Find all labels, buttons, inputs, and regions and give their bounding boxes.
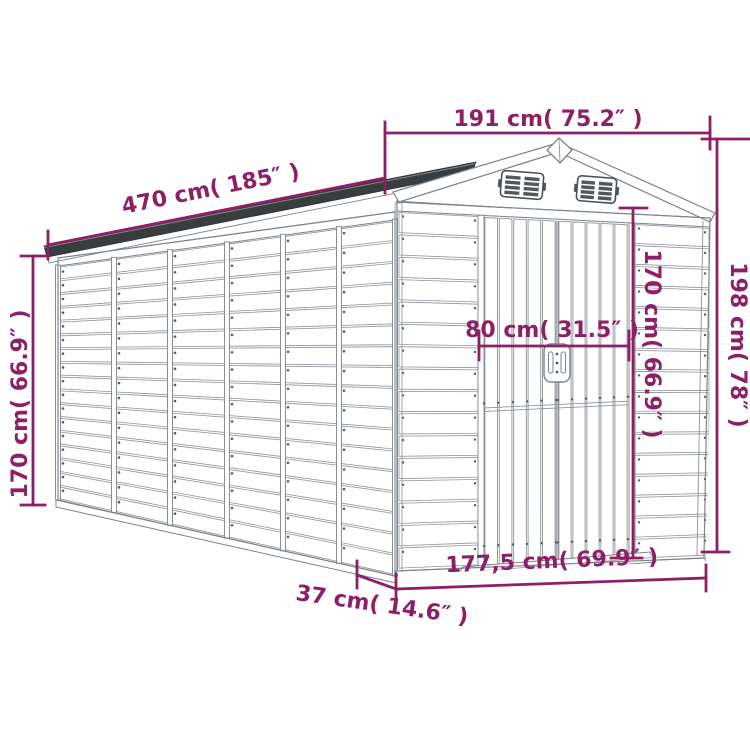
diagram-page: 191 cm( 75.2″ ) 470 cm( 185″ ) 198 cm( 7… <box>0 0 750 750</box>
screw-dot <box>474 241 476 243</box>
side-slat <box>227 383 283 401</box>
screw-dot <box>62 435 65 438</box>
screw-dot <box>474 526 476 528</box>
screw-dot <box>497 544 499 546</box>
screw-dot <box>118 412 121 415</box>
screw-dot <box>343 291 346 294</box>
screw-dot <box>118 292 121 295</box>
dimension-total-height-right-label: 198 cm( 78″ ) <box>725 262 750 427</box>
door-panel <box>587 223 599 561</box>
screw-dot <box>704 334 706 336</box>
screw-dot <box>627 538 629 540</box>
gable-vent <box>497 170 547 200</box>
screw-dot <box>474 351 476 353</box>
screw-dot <box>118 337 121 340</box>
side-slat <box>283 347 339 365</box>
side-slat <box>58 391 114 407</box>
screw-dot <box>287 332 290 335</box>
screw-dot <box>231 386 234 389</box>
screw-dot <box>585 540 587 542</box>
screw-dot <box>174 448 177 451</box>
screw-dot <box>231 524 234 527</box>
screw-dot <box>343 527 346 530</box>
dimension-door-width-label: 80 cm( 31.5″ ) <box>465 318 639 343</box>
side-post <box>112 257 117 512</box>
front-slat <box>399 257 479 280</box>
front-slat <box>399 280 479 302</box>
screw-dot <box>62 284 65 287</box>
screw-dot <box>599 539 601 541</box>
screw-dot <box>62 489 65 492</box>
side-post <box>281 234 286 550</box>
screw-dot <box>231 420 234 423</box>
side-slat <box>227 292 283 311</box>
screw-dot <box>118 397 121 400</box>
screw-dot <box>474 219 476 221</box>
side-slat <box>114 349 170 363</box>
door-panel <box>615 224 627 559</box>
screw-dot <box>474 307 476 309</box>
side-slat <box>283 366 339 384</box>
screw-dot <box>497 402 499 404</box>
screw-dot <box>118 277 121 280</box>
screw-dot <box>343 409 346 412</box>
door-handle-grip <box>549 352 554 373</box>
gable-vent <box>573 175 620 203</box>
front-slat <box>399 235 479 258</box>
screw-dot <box>343 350 346 353</box>
screw-dot <box>287 535 290 538</box>
screw-dot <box>638 227 640 229</box>
side-slat <box>283 268 339 290</box>
screw-dot <box>474 504 476 506</box>
front-slat <box>399 479 479 501</box>
screw-dot <box>540 542 542 544</box>
screw-dot <box>62 462 65 465</box>
side-slat <box>227 274 283 295</box>
door-handle-grip <box>561 352 566 373</box>
dimension-wall-height-left-label: 170 cm( 66.9″ ) <box>8 309 33 498</box>
side-slat <box>170 296 227 314</box>
screw-dot <box>483 402 485 404</box>
screw-dot <box>174 384 177 387</box>
screw-dot <box>118 352 121 355</box>
screw-dot <box>231 403 234 406</box>
door-panel <box>499 218 512 564</box>
screw-dot <box>287 369 290 372</box>
screw-dot <box>62 421 65 424</box>
screw-dot <box>483 545 485 547</box>
screw-dot <box>704 313 706 315</box>
screw-dot <box>174 303 177 306</box>
screw-dot <box>174 480 177 483</box>
screw-dot <box>343 508 346 511</box>
screw-dot <box>512 401 514 403</box>
front-slat <box>399 347 479 368</box>
screw-dot <box>231 489 234 492</box>
screw-dot <box>343 389 346 392</box>
side-slat <box>58 304 114 320</box>
screw-dot <box>231 316 234 319</box>
screw-dot <box>287 517 290 520</box>
screw-dot <box>231 299 234 302</box>
front-slat <box>635 225 709 247</box>
side-slat <box>114 333 170 348</box>
side-slat <box>339 263 395 286</box>
side-slat <box>58 349 114 362</box>
side-wall <box>56 212 398 583</box>
front-slat <box>399 391 479 411</box>
screw-dot <box>343 232 346 235</box>
screw-dot <box>571 398 573 400</box>
screw-dot <box>474 460 476 462</box>
side-slat <box>283 308 339 327</box>
side-slat <box>114 379 170 395</box>
screw-dot <box>638 500 640 502</box>
screw-dot <box>231 264 234 267</box>
screw-dot <box>62 270 65 273</box>
screw-dot <box>174 464 177 467</box>
screw-dot <box>474 438 476 440</box>
front-slat <box>399 457 479 478</box>
screw-dot <box>613 539 615 541</box>
side-slat <box>170 397 227 415</box>
screw-dot <box>585 397 587 399</box>
side-slat <box>58 377 114 392</box>
screw-dot <box>231 247 234 250</box>
screw-dot <box>62 325 65 328</box>
side-slat <box>227 365 283 382</box>
screw-dot <box>118 471 121 474</box>
side-slat <box>339 305 395 326</box>
door-jamb <box>478 215 484 567</box>
screw-dot <box>627 395 629 397</box>
screw-dot <box>231 334 234 337</box>
front-slat <box>399 523 479 546</box>
screw-dot <box>174 400 177 403</box>
screw-dot <box>62 339 65 342</box>
front-slat <box>399 213 479 237</box>
screw-dot <box>343 488 346 491</box>
screw-dot <box>62 352 65 355</box>
screw-dot <box>62 476 65 479</box>
door-panel <box>559 221 571 561</box>
screw-dot <box>343 429 346 432</box>
screw-dot <box>174 351 177 354</box>
screw-dot <box>174 335 177 338</box>
screw-dot <box>62 366 65 369</box>
screw-dot <box>343 330 346 333</box>
screw-dot <box>287 276 290 279</box>
side-slat <box>114 300 170 317</box>
side-slat <box>339 284 395 306</box>
side-slat <box>227 311 283 329</box>
screw-dot <box>704 354 706 356</box>
screw-dot <box>118 382 121 385</box>
screw-dot <box>62 448 65 451</box>
screw-dot <box>174 255 177 258</box>
screw-dot <box>704 293 706 295</box>
screw-dot <box>287 313 290 316</box>
screw-dot <box>343 547 346 550</box>
screw-dot <box>174 271 177 274</box>
side-slat <box>170 365 227 381</box>
door-panel <box>528 220 541 563</box>
side-slat <box>339 347 395 366</box>
side-slat <box>339 406 395 428</box>
screw-dot <box>638 542 640 544</box>
screw-dot <box>231 455 234 458</box>
front-slat <box>399 414 479 434</box>
screw-dot <box>638 479 640 481</box>
side-slat <box>114 364 170 379</box>
screw-dot <box>287 406 290 409</box>
screw-dot <box>231 368 234 371</box>
screw-dot <box>704 231 706 233</box>
screw-dot <box>174 319 177 322</box>
side-slat <box>283 327 339 345</box>
side-slat <box>227 348 283 364</box>
screw-dot <box>638 458 640 460</box>
door-panel <box>485 217 498 564</box>
front-slat <box>399 501 479 523</box>
screw-dot <box>231 282 234 285</box>
screw-dot <box>62 394 65 397</box>
screw-dot <box>526 543 528 545</box>
screw-dot <box>704 416 706 418</box>
side-post <box>337 227 342 564</box>
screw-dot <box>474 395 476 397</box>
screw-dot <box>231 472 234 475</box>
screw-dot <box>231 437 234 440</box>
side-slat <box>283 422 339 444</box>
shed-dimension-diagram: 191 cm( 75.2″ ) 470 cm( 185″ ) 198 cm( 7… <box>0 0 750 750</box>
screw-dot <box>474 416 476 418</box>
screw-dot <box>343 370 346 373</box>
screw-dot <box>118 456 121 459</box>
screw-dot <box>343 252 346 255</box>
side-slat <box>227 417 283 438</box>
screw-dot <box>62 380 65 383</box>
screw-dot <box>343 468 346 471</box>
screw-dot <box>540 400 542 402</box>
screw-dot <box>287 424 290 427</box>
screw-dot <box>62 407 65 410</box>
screw-dot <box>118 367 121 370</box>
screw-dot <box>571 541 573 543</box>
screw-dot <box>174 512 177 515</box>
door-panel <box>543 220 556 562</box>
side-slat <box>283 288 339 309</box>
screw-dot <box>474 285 476 287</box>
screw-dot <box>174 432 177 435</box>
screw-dot <box>118 322 121 325</box>
screw-dot <box>231 351 234 354</box>
screw-dot <box>474 548 476 550</box>
side-slat <box>58 363 114 377</box>
side-post <box>225 242 230 538</box>
dimension-door-height-label: 170 cm( 66.9″ ) <box>639 249 664 438</box>
side-post <box>168 250 173 526</box>
screw-dot <box>599 397 601 399</box>
screw-dot <box>118 307 121 310</box>
side-slat <box>114 316 170 332</box>
side-slat <box>339 426 395 449</box>
front-slat <box>399 369 479 390</box>
screw-dot <box>474 482 476 484</box>
screw-dot <box>174 368 177 371</box>
screw-dot <box>118 263 121 266</box>
screw-dot <box>174 416 177 419</box>
screw-dot <box>287 350 290 353</box>
front-slat <box>399 436 479 457</box>
dimension-line <box>396 578 706 589</box>
side-slat <box>114 394 170 411</box>
screw-dot <box>174 496 177 499</box>
screw-dot <box>62 311 65 314</box>
handle-dot <box>556 362 559 365</box>
dimension-roof-width-front-label: 191 cm( 75.2″ ) <box>453 107 642 132</box>
screw-dot <box>613 396 615 398</box>
door-panel <box>601 223 613 559</box>
screw-dot <box>555 399 557 401</box>
side-slat <box>339 367 395 387</box>
handle-dot <box>556 371 559 374</box>
door-panel <box>514 219 527 564</box>
screw-dot <box>118 501 121 504</box>
handle-dot <box>556 353 559 356</box>
screw-dot <box>474 373 476 375</box>
side-slat <box>170 331 227 347</box>
side-slat <box>58 334 114 347</box>
screw-dot <box>343 311 346 314</box>
screw-dot <box>62 298 65 301</box>
screw-dot <box>704 375 706 377</box>
screw-dot <box>231 507 234 510</box>
dimension-wall-height-left: 170 cm( 66.9″ ) <box>8 256 45 505</box>
screw-dot <box>287 239 290 242</box>
side-slat <box>170 348 227 363</box>
screw-dot <box>526 400 528 402</box>
screw-dot <box>287 498 290 501</box>
screw-dot <box>118 426 121 429</box>
side-slat <box>339 387 395 408</box>
screw-dot <box>638 521 640 523</box>
screw-dot <box>555 541 557 543</box>
side-slat <box>170 314 227 331</box>
side-slat <box>283 385 339 405</box>
screw-dot <box>287 461 290 464</box>
screw-dot <box>343 448 346 451</box>
screw-dot <box>287 443 290 446</box>
side-slat <box>339 326 395 345</box>
side-slat <box>227 329 283 346</box>
screw-dot <box>287 480 290 483</box>
screw-dot <box>287 295 290 298</box>
screw-dot <box>704 252 706 254</box>
front-slat <box>635 454 709 474</box>
side-slat <box>58 319 114 334</box>
screw-dot <box>512 543 514 545</box>
screw-dot <box>287 258 290 261</box>
screw-dot <box>704 272 706 274</box>
screw-dot <box>118 486 121 489</box>
screw-dot <box>343 271 346 274</box>
screw-dot <box>474 263 476 265</box>
side-slat <box>227 400 283 420</box>
screw-dot <box>704 396 706 398</box>
screw-dot <box>118 441 121 444</box>
door-panel <box>573 222 585 561</box>
side-slat <box>170 381 227 398</box>
side-slat <box>283 403 339 424</box>
screw-dot <box>287 387 290 390</box>
screw-dot <box>174 287 177 290</box>
